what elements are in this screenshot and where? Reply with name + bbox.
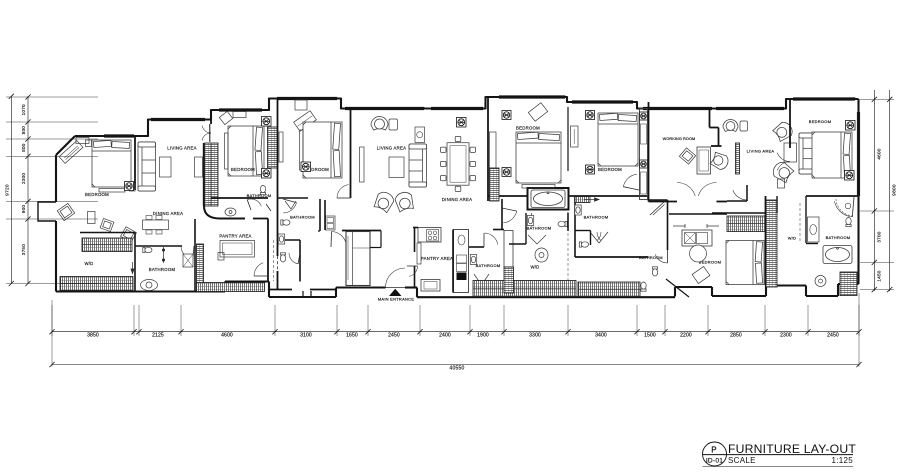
svg-text:ID-01: ID-01 bbox=[706, 458, 723, 465]
svg-text:W/D: W/D bbox=[84, 261, 93, 266]
svg-text:800: 800 bbox=[21, 126, 26, 135]
svg-text:2200: 2200 bbox=[680, 332, 692, 338]
svg-text:LIVING AREA: LIVING AREA bbox=[377, 146, 407, 151]
svg-text:3300: 3300 bbox=[529, 332, 541, 338]
svg-text:W/D: W/D bbox=[530, 265, 539, 270]
svg-text:BEDROOM: BEDROOM bbox=[809, 119, 831, 124]
svg-text:9800: 9800 bbox=[892, 184, 898, 196]
svg-text:DINING AREA: DINING AREA bbox=[153, 211, 183, 216]
svg-text:BATHROOM: BATHROOM bbox=[290, 214, 315, 219]
svg-text:1900: 1900 bbox=[477, 332, 489, 338]
svg-text:BATHROOM: BATHROOM bbox=[639, 256, 663, 260]
svg-text:1070: 1070 bbox=[21, 104, 26, 115]
svg-text:MAIN ENTRANCE: MAIN ENTRANCE bbox=[378, 297, 414, 302]
svg-text:W/D: W/D bbox=[788, 236, 797, 241]
svg-text:BATHROOM: BATHROOM bbox=[826, 235, 851, 240]
svg-text:9720: 9720 bbox=[5, 184, 11, 196]
svg-text:DINING AREA: DINING AREA bbox=[442, 197, 472, 202]
svg-text:4600: 4600 bbox=[877, 148, 882, 159]
svg-text:P: P bbox=[711, 445, 717, 454]
svg-text:BATHROOM: BATHROOM bbox=[527, 226, 552, 231]
svg-text:LIVING AREA: LIVING AREA bbox=[747, 149, 775, 154]
svg-text:SCALE: SCALE bbox=[728, 456, 756, 465]
svg-text:PANTRY AREA: PANTRY AREA bbox=[219, 234, 251, 239]
svg-text:2850: 2850 bbox=[730, 332, 742, 338]
svg-text:BATHROOM: BATHROOM bbox=[584, 215, 609, 220]
svg-text:WORKING ROOM: WORKING ROOM bbox=[663, 137, 696, 141]
svg-text:2450: 2450 bbox=[827, 332, 839, 338]
svg-text:2400: 2400 bbox=[439, 332, 451, 338]
svg-text:2300: 2300 bbox=[780, 332, 792, 338]
svg-text:800: 800 bbox=[21, 143, 26, 152]
svg-text:2300: 2300 bbox=[21, 173, 26, 184]
svg-text:900: 900 bbox=[21, 205, 26, 214]
svg-text:BATHROOM: BATHROOM bbox=[476, 263, 501, 268]
svg-text:BATHROOM: BATHROOM bbox=[247, 193, 272, 198]
svg-text:3100: 3100 bbox=[300, 332, 312, 338]
svg-text:BEDROOM: BEDROOM bbox=[598, 167, 622, 172]
svg-text:PANTRY AREA: PANTRY AREA bbox=[421, 256, 453, 261]
svg-text:1650: 1650 bbox=[346, 332, 358, 338]
svg-text:3700: 3700 bbox=[877, 231, 882, 242]
svg-text:2125: 2125 bbox=[152, 332, 164, 338]
svg-text:3750: 3750 bbox=[21, 244, 26, 255]
svg-text:BEDROOM: BEDROOM bbox=[85, 192, 109, 197]
svg-text:LIVING AREA: LIVING AREA bbox=[167, 146, 197, 151]
svg-text:3400: 3400 bbox=[595, 332, 607, 338]
svg-text:4600: 4600 bbox=[221, 332, 233, 338]
svg-text:BEDROOM: BEDROOM bbox=[231, 167, 255, 172]
svg-text:BATHROOM: BATHROOM bbox=[149, 267, 176, 272]
svg-text:BEDROOM: BEDROOM bbox=[516, 126, 540, 131]
svg-text:3850: 3850 bbox=[87, 332, 99, 338]
svg-text:1450: 1450 bbox=[877, 270, 882, 281]
svg-text:1500: 1500 bbox=[644, 332, 656, 338]
svg-text:1:125: 1:125 bbox=[831, 456, 853, 465]
svg-text:FURNITURE LAY-OUT: FURNITURE LAY-OUT bbox=[728, 442, 856, 456]
svg-text:2450: 2450 bbox=[388, 332, 400, 338]
svg-text:40550: 40550 bbox=[449, 366, 464, 372]
